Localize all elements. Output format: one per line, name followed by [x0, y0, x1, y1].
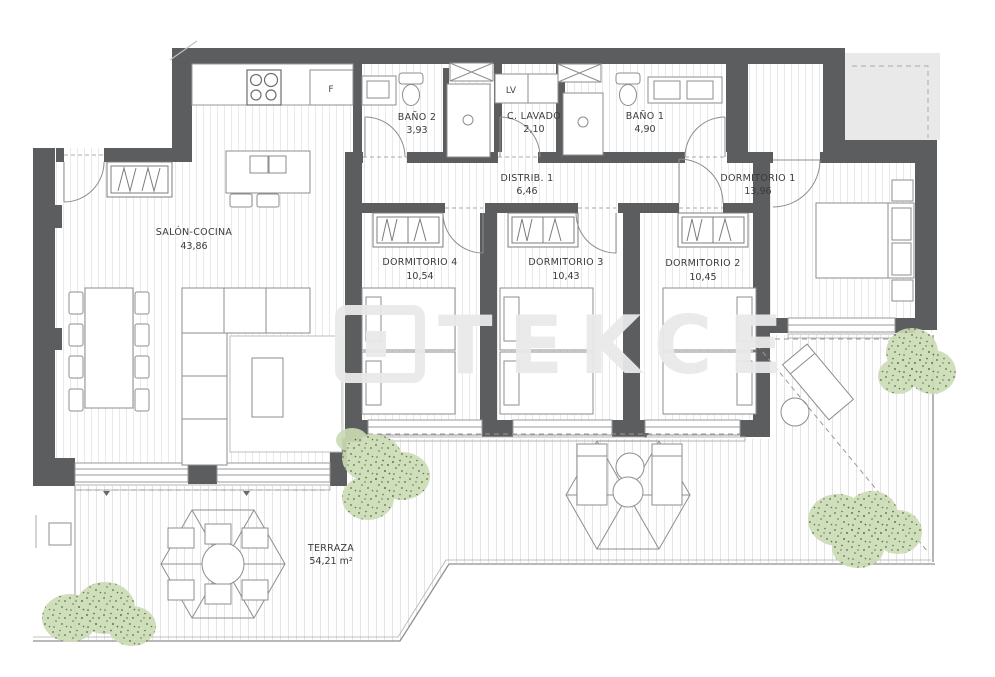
room-area-distrib: 6,46 [516, 186, 537, 197]
room-label-lavado: C. LAVADO [507, 111, 561, 122]
washer-label: LV [506, 86, 517, 96]
room-label-distrib: DISTRIB. 1 [501, 173, 554, 184]
shower-tray [447, 84, 490, 157]
room-area-bano1: 4,90 [634, 124, 655, 135]
chair [242, 580, 268, 600]
coffee-table [252, 358, 283, 417]
sink [687, 81, 713, 99]
floor-plan: F LV [0, 0, 995, 677]
chair [205, 524, 231, 544]
room-area-dorm2: 10,45 [689, 272, 716, 283]
entry-wardrobe [107, 162, 172, 197]
sink [367, 81, 389, 98]
wardrobe-dorm4 [373, 213, 443, 247]
fridge-box: F [310, 70, 353, 105]
sink [654, 81, 680, 99]
nightstand [892, 180, 913, 201]
nightstand [892, 280, 913, 301]
planter-box [49, 523, 71, 545]
wardrobe-dorm2 [678, 213, 748, 247]
round-table [202, 543, 244, 585]
room-area-salon: 43,86 [180, 241, 207, 252]
sun-lounger [652, 444, 682, 505]
room-label-salon: SALÓN-COCINA [156, 226, 233, 238]
room-label-dorm4: DORMITORIO 4 [382, 257, 457, 268]
chair [168, 580, 194, 600]
shaft-x-icon [558, 64, 601, 82]
pillow [892, 208, 911, 240]
floor-plan-canvas: F LV [0, 0, 995, 677]
room-area-lavado: 2,10 [523, 124, 544, 135]
chair [168, 528, 194, 548]
room-label-bano2: BAÑO 2 [398, 112, 436, 123]
room-area-bano2: 3,93 [406, 125, 427, 136]
counter-box [528, 74, 558, 103]
room-label-dorm2: DORMITORIO 2 [665, 258, 740, 269]
fridge-label: F [328, 85, 333, 95]
pillow [892, 243, 911, 275]
shower-tray [563, 93, 603, 155]
dining-table [85, 288, 133, 408]
room-area-dorm3: 10,43 [552, 271, 579, 282]
room-area-dorm4: 10,54 [406, 271, 433, 282]
room-label-dorm3: DORMITORIO 3 [528, 257, 603, 268]
room-label-terraza: TERRAZA [307, 543, 354, 554]
wardrobe-dorm3 [508, 213, 578, 247]
chair [242, 528, 268, 548]
rug [230, 336, 342, 452]
room-label-dorm1: DORMITORIO 1 [720, 173, 795, 184]
watermark-text: TEKCE [438, 299, 799, 392]
hob-icon [247, 70, 281, 105]
shaft-x-icon [450, 63, 493, 81]
chair [205, 584, 231, 604]
adjacent-unit-block [845, 53, 940, 140]
laundry-fixtures: LV [495, 74, 558, 103]
room-label-bano1: BAÑO 1 [626, 111, 664, 122]
room-area-terraza: 54,21 m² [309, 556, 352, 567]
room-area-dorm1: 13,96 [744, 186, 771, 197]
stool [230, 194, 252, 207]
sun-lounger [577, 444, 607, 505]
stool [257, 194, 279, 207]
